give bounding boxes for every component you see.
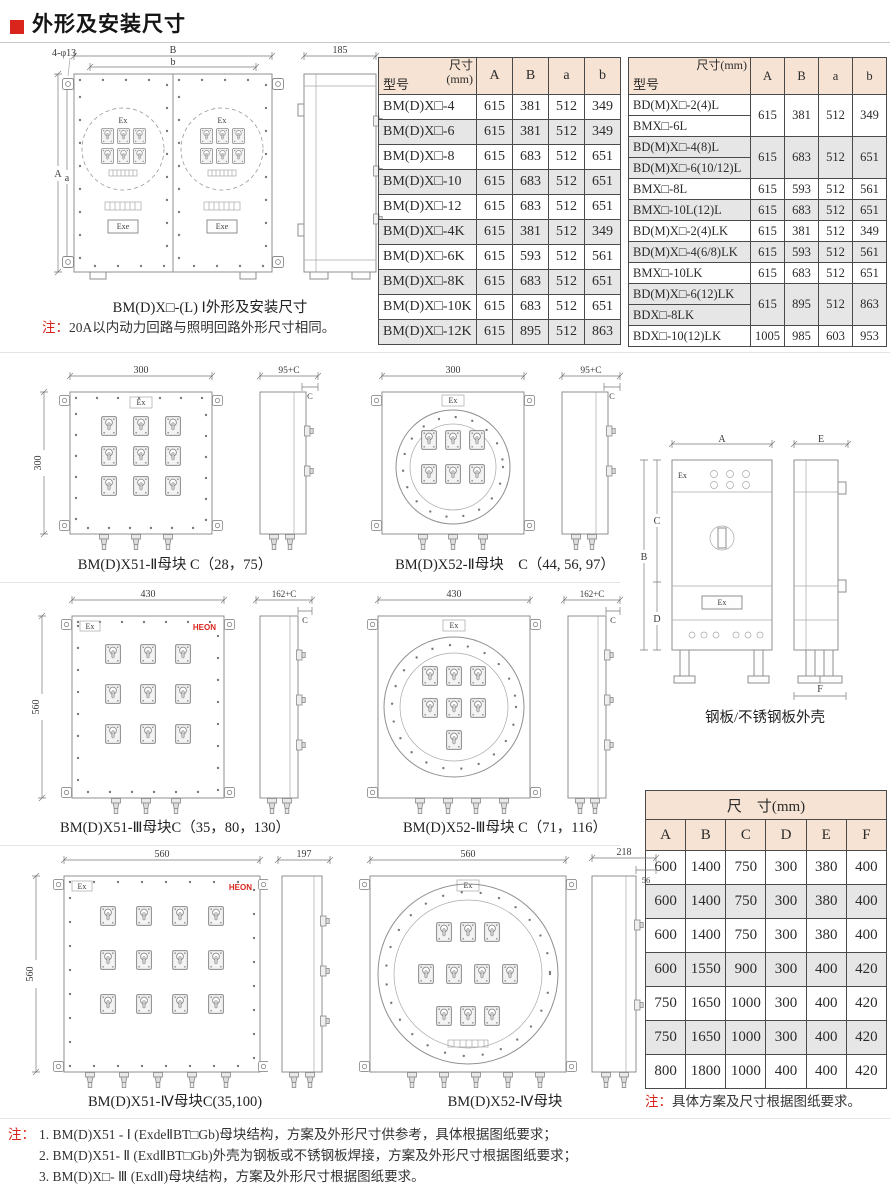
table-row: BM(D)X□-10K 615 683 512 651 — [379, 295, 621, 320]
table-row: BDX□-10(12)LK1005985603953 — [629, 326, 887, 347]
model-cell: BM(D)X□-8K — [379, 270, 477, 295]
col-header: B — [513, 58, 549, 95]
caption-bmdx-outline: BM(D)X□-(L) Ⅰ外形及安装尺寸 — [55, 296, 365, 317]
value-cell: 615 — [477, 195, 513, 220]
value-cell: 512 — [549, 170, 585, 195]
section-divider — [0, 1118, 890, 1119]
col-header: a — [549, 58, 585, 95]
value-cell: 1400 — [686, 885, 726, 919]
value-cell: 561 — [585, 245, 621, 270]
ex-marking-label: Ex — [678, 471, 687, 480]
value-cell: 400 — [846, 919, 886, 953]
note-text: 具体方案及尺寸根据图纸要求。 — [672, 1094, 861, 1109]
value-cell: 512 — [549, 320, 585, 345]
col-header: A — [646, 820, 686, 851]
value-cell: 512 — [549, 245, 585, 270]
heon-logo: HEON — [229, 883, 252, 892]
ex-marking-label: Ex — [449, 396, 458, 405]
value-cell: 1000 — [726, 987, 766, 1021]
table-header-row: 尺寸(mm) 型号 A B a b — [379, 58, 621, 95]
col-header: B — [686, 820, 726, 851]
table-row: BM(D)X□-4 615 381 512 349 — [379, 95, 621, 120]
model-cell: BM(D)X□-10K — [379, 295, 477, 320]
footnotes: 注： 1. BM(D)X51 - Ⅰ (ExdeⅡBT□Gb)母块结构，方案及外… — [8, 1124, 878, 1186]
value-cell: 512 — [549, 120, 585, 145]
page-title: 外形及安装尺寸 — [32, 13, 186, 36]
caption-x51-ii: BM(D)X51-Ⅱ母块 C（28，75） — [20, 553, 330, 574]
value-cell: 512 — [549, 95, 585, 120]
caption-x51-iii: BM(D)X51-Ⅲ母块C（35，80，130） — [20, 816, 330, 837]
table-title: 尺 寸(mm) — [646, 791, 887, 820]
drawing-x51-ii-front-view: 300 300 Ex — [34, 364, 242, 554]
dim-label-width: 560 — [461, 849, 476, 860]
value-cell: 615 — [477, 320, 513, 345]
value-cell: 300 — [766, 885, 806, 919]
value-cell: 615 — [477, 220, 513, 245]
table-row: BM(D)X□-12K 615 895 512 863 — [379, 320, 621, 345]
ex-marking-label: Ex — [86, 622, 95, 631]
dim-label-holes: 4-φ13 — [52, 48, 76, 59]
ex-marking-label: Ex — [119, 116, 128, 125]
value-cell: 615 — [477, 270, 513, 295]
section-divider — [0, 352, 890, 353]
drawing-steel-cabinet: A E B C D Ex Ex F — [636, 434, 888, 704]
drawing-x52-iv-front-view: 560 Ex — [340, 848, 580, 1090]
dim-label-depth: 95+C — [278, 366, 299, 376]
value-cell: 683 — [513, 145, 549, 170]
value-cell: 1650 — [686, 1021, 726, 1055]
value-cell: 349 — [585, 220, 621, 245]
drawing-x52-ii-side-view: 95+C C — [548, 364, 636, 554]
ex-marking-label: Ex — [137, 398, 146, 407]
value-cell: 750 — [726, 919, 766, 953]
dim-label-depth: 95+C — [580, 366, 601, 376]
value-cell: 1550 — [686, 953, 726, 987]
col-header: b — [585, 58, 621, 95]
dim-label-c: C — [302, 615, 308, 625]
table-row: BM(D)X□-8K 615 683 512 651 — [379, 270, 621, 295]
note-bmdx: 注：20A以内动力回路与照明回路外形尺寸相同。 — [42, 316, 387, 336]
cabinet-dimension-table: 尺 寸(mm) A B C D E F 600 1400 750 300 380… — [645, 790, 887, 1089]
drawing-x52-iii-side-view: 162+C C — [556, 588, 628, 816]
value-cell: 683 — [513, 270, 549, 295]
table-row: 600 1400 750 300 380 400 — [646, 885, 887, 919]
dim-label-width: 560 — [155, 849, 170, 860]
value-cell: 420 — [846, 953, 886, 987]
dim-label-E: E — [818, 434, 824, 445]
drawing-bmdx-front-view: B b 4-φ13 A a Ex Ex Exe Exe — [50, 44, 288, 296]
value-cell: 615 — [477, 245, 513, 270]
dim-label-B: B — [641, 552, 648, 563]
value-cell: 300 — [766, 1021, 806, 1055]
drawing-x51-iii-side-view: 162+C C — [248, 588, 320, 816]
ex-marking-label: Ex — [718, 598, 727, 607]
heon-logo: HEON — [193, 623, 216, 632]
value-cell: 683 — [513, 295, 549, 320]
table-row: BM(D)X□-12 615 683 512 651 — [379, 195, 621, 220]
value-cell: 349 — [585, 120, 621, 145]
table-row: BD(M)X□-2(4)L615381512349 — [629, 95, 887, 116]
value-cell: 651 — [585, 295, 621, 320]
value-cell: 1800 — [686, 1055, 726, 1089]
diag-size-label: 尺寸(mm) — [446, 59, 473, 87]
table-row: BM(D)X□-8 615 683 512 651 — [379, 145, 621, 170]
dim-label-c: C — [610, 615, 616, 625]
drawing-x52-iii-front-view: 430 Ex — [344, 588, 554, 816]
value-cell: 300 — [766, 851, 806, 885]
model-cell: BM(D)X□-6K — [379, 245, 477, 270]
table-row: BD(M)X□-4(8)L615683512651 — [629, 137, 887, 158]
table-row: 600 1400 750 300 380 400 — [646, 851, 887, 885]
dim-label-width: 430 — [141, 589, 156, 600]
table-row: BMX□-10L(12)L615683512651 — [629, 200, 887, 221]
value-cell: 750 — [726, 851, 766, 885]
value-cell: 683 — [513, 195, 549, 220]
value-cell: 420 — [846, 1055, 886, 1089]
value-cell: 381 — [513, 220, 549, 245]
model-cell: BM(D)X□-4K — [379, 220, 477, 245]
model-cell: BM(D)X□-4 — [379, 95, 477, 120]
dim-label-depth: 185 — [333, 45, 348, 56]
diagonal-header-cell: 尺寸(mm) 型号 — [379, 58, 477, 95]
section-divider — [0, 845, 620, 846]
dim-label-height: 300 — [34, 456, 44, 471]
ex-marking-label: Ex — [464, 881, 473, 890]
dim-label-a: a — [65, 173, 70, 184]
dim-label-sub: 56 — [642, 875, 651, 885]
table-row: BD(M)X□-4(6/8)LK615593512561 — [629, 242, 887, 263]
dim-label-height: 560 — [26, 967, 36, 982]
value-cell: 615 — [477, 120, 513, 145]
value-cell: 380 — [806, 919, 846, 953]
diag-size-label: 尺寸(mm) — [696, 59, 747, 73]
value-cell: 651 — [585, 270, 621, 295]
col-header: A — [751, 58, 785, 95]
table-row: BMX□-10LK615683512651 — [629, 263, 887, 284]
value-cell: 420 — [846, 987, 886, 1021]
value-cell: 512 — [549, 270, 585, 295]
value-cell: 400 — [846, 851, 886, 885]
col-header: B — [785, 58, 819, 95]
red-square-bullet-icon — [10, 20, 24, 34]
value-cell: 300 — [766, 987, 806, 1021]
model-cell: BM(D)X□-12 — [379, 195, 477, 220]
dim-label-D: D — [653, 614, 660, 625]
model-cell: BM(D)X□-10 — [379, 170, 477, 195]
table-row: BD(M)X□-6(12)LK615895512863 — [629, 284, 887, 305]
col-header: A — [477, 58, 513, 95]
section-divider — [0, 582, 620, 583]
footnote-line: 3. BM(D)X□- Ⅲ (ExdⅡ)母块结构，方案及外形尺寸根据图纸要求。 — [39, 1166, 577, 1186]
footnote-prefix: 注： — [8, 1124, 35, 1186]
diag-model-label: 型号 — [633, 74, 659, 93]
value-cell: 512 — [549, 220, 585, 245]
dim-label-depth: 197 — [297, 849, 312, 860]
dim-label-A: A — [718, 434, 726, 445]
dim-label-F: F — [817, 684, 823, 695]
value-cell: 651 — [585, 170, 621, 195]
value-cell: 400 — [806, 1055, 846, 1089]
caption-x52-iii: BM(D)X52-Ⅲ母块 C（71，116） — [355, 816, 655, 837]
page-header: 外形及安装尺寸 — [0, 8, 890, 43]
value-cell: 512 — [549, 195, 585, 220]
value-cell: 400 — [766, 1055, 806, 1089]
value-cell: 300 — [766, 953, 806, 987]
note-cabinet: 注：具体方案及尺寸根据图纸要求。 — [645, 1090, 888, 1110]
col-header: F — [846, 820, 886, 851]
drawing-x51-ii-side-view: 95+C C — [246, 364, 334, 554]
dim-label-c: C — [307, 391, 313, 401]
model-cell: BM(D)X□-8 — [379, 145, 477, 170]
dimension-table-bdmx: 尺寸(mm) 型号 A B a b BD(M)X□-2(4)L615381512… — [628, 57, 887, 347]
caption-x51-iv: BM(D)X51-Ⅳ母块C(35,100) — [20, 1090, 330, 1111]
value-cell: 349 — [585, 95, 621, 120]
note-text: 20A以内动力回路与照明回路外形尺寸相同。 — [69, 320, 335, 335]
value-cell: 1400 — [686, 919, 726, 953]
table-row: BM(D)X□-6 615 381 512 349 — [379, 120, 621, 145]
dim-label-width: 300 — [134, 365, 149, 376]
value-cell: 615 — [477, 95, 513, 120]
value-cell: 615 — [477, 170, 513, 195]
table-title-row: 尺 寸(mm) — [646, 791, 887, 820]
footnote-line: 2. BM(D)X51- Ⅱ (ExdⅡBT□Gb)外壳为钢板或不锈钢板焊接，方… — [39, 1145, 577, 1166]
table-row: BD(M)X□-2(4)LK615381512349 — [629, 221, 887, 242]
drawing-x52-iv-side-view: 218 56 — [578, 848, 670, 1090]
value-cell: 863 — [585, 320, 621, 345]
col-header: a — [819, 58, 853, 95]
value-cell: 400 — [846, 885, 886, 919]
table-row: 600 1550 900 300 400 420 — [646, 953, 887, 987]
value-cell: 381 — [513, 120, 549, 145]
col-header: C — [726, 820, 766, 851]
ex-marking-label: Ex — [78, 882, 87, 891]
catalog-page: 外形及安装尺寸 B b 4-φ13 A a Ex Ex Exe — [0, 0, 890, 1186]
value-cell: 400 — [806, 1021, 846, 1055]
dim-label-depth: 218 — [617, 848, 632, 858]
dim-label-b: b — [171, 57, 176, 68]
col-header: D — [766, 820, 806, 851]
value-cell: 380 — [806, 851, 846, 885]
dim-label-A: A — [54, 169, 62, 180]
dimension-table-bmdx: 尺寸(mm) 型号 A B a b BM(D)X□-4 615 381 512 … — [378, 57, 621, 345]
dim-label-B: B — [170, 45, 177, 56]
table-row: 800 1800 1000 400 400 420 — [646, 1055, 887, 1089]
diagonal-header-cell: 尺寸(mm) 型号 — [629, 58, 751, 95]
ex-marking-label: Ex — [218, 116, 227, 125]
value-cell: 615 — [477, 295, 513, 320]
value-cell: 400 — [806, 953, 846, 987]
caption-x52-iv: BM(D)X52-Ⅳ母块 — [355, 1090, 655, 1111]
table-row: 750 1650 1000 300 400 420 — [646, 987, 887, 1021]
value-cell: 651 — [585, 145, 621, 170]
table-row: BMX□-8L615593512561 — [629, 179, 887, 200]
model-cell: BM(D)X□-6 — [379, 120, 477, 145]
value-cell: 420 — [846, 1021, 886, 1055]
drawing-x51-iv-front-view: 560 560 Ex HEON — [26, 848, 268, 1090]
note-prefix: 注： — [42, 320, 69, 335]
dim-label-width: 300 — [446, 365, 461, 376]
model-cell: BM(D)X□-12K — [379, 320, 477, 345]
table-row: 750 1650 1000 300 400 420 — [646, 1021, 887, 1055]
drawing-bmdx-side-view: 185 — [288, 44, 384, 296]
value-cell: 400 — [806, 987, 846, 1021]
value-cell: 1000 — [726, 1055, 766, 1089]
drawing-x51-iv-side-view: 197 — [268, 848, 342, 1090]
dim-label-depth: 162+C — [272, 589, 297, 599]
value-cell: 380 — [806, 885, 846, 919]
value-cell: 1000 — [726, 1021, 766, 1055]
table-row: BM(D)X□-4K 615 381 512 349 — [379, 220, 621, 245]
exe-marking-label: Exe — [117, 222, 130, 231]
dim-label-height: 560 — [32, 700, 42, 715]
table-row: BM(D)X□-6K 615 593 512 561 — [379, 245, 621, 270]
dim-label-depth: 162+C — [580, 589, 605, 599]
dim-label-C: C — [654, 516, 661, 527]
value-cell: 381 — [513, 95, 549, 120]
value-cell: 300 — [766, 919, 806, 953]
value-cell: 1650 — [686, 987, 726, 1021]
value-cell: 750 — [726, 885, 766, 919]
table-row: 600 1400 750 300 380 400 — [646, 919, 887, 953]
ex-marking-label: Ex — [450, 621, 459, 630]
dim-label-width: 430 — [447, 589, 462, 600]
table-row: BM(D)X□-10 615 683 512 651 — [379, 170, 621, 195]
value-cell: 593 — [513, 245, 549, 270]
exe-marking-label: Exe — [216, 222, 229, 231]
value-cell: 651 — [585, 195, 621, 220]
table-header-row: 尺寸(mm) 型号 A B a b — [629, 58, 887, 95]
value-cell: 683 — [513, 170, 549, 195]
value-cell: 900 — [726, 953, 766, 987]
value-cell: 615 — [477, 145, 513, 170]
col-header: b — [853, 58, 887, 95]
caption-steel-cabinet: 钢板/不锈钢板外壳 — [640, 706, 890, 727]
drawing-x52-ii-front-view: 300 Ex — [350, 364, 555, 554]
value-cell: 512 — [549, 295, 585, 320]
value-cell: 1400 — [686, 851, 726, 885]
col-header: E — [806, 820, 846, 851]
value-cell: 512 — [549, 145, 585, 170]
footnote-line: 1. BM(D)X51 - Ⅰ (ExdeⅡBT□Gb)母块结构，方案及外形尺寸… — [39, 1124, 577, 1145]
value-cell: 895 — [513, 320, 549, 345]
dim-label-c: C — [609, 391, 615, 401]
caption-x52-ii: BM(D)X52-Ⅱ母块 C（44, 56, 97） — [355, 553, 655, 574]
diag-model-label: 型号 — [383, 74, 409, 93]
table-header-row: A B C D E F — [646, 820, 887, 851]
drawing-x51-iii-front-view: 430 560 Ex HEON — [32, 588, 244, 816]
